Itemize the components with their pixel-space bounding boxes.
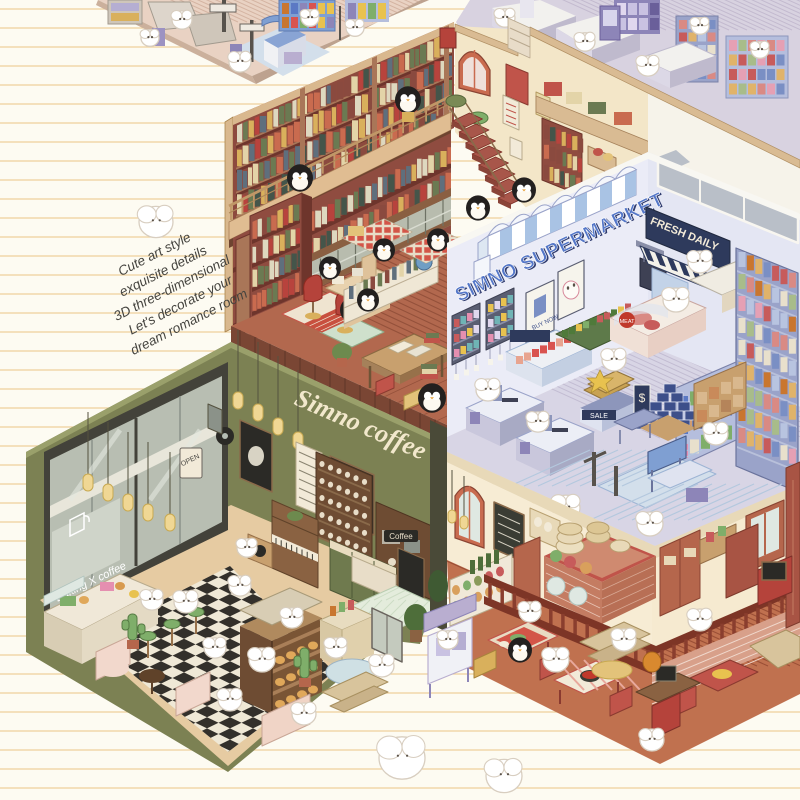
svg-text:Coffee: Coffee (389, 532, 413, 541)
svg-text:MEAT: MEAT (620, 319, 636, 325)
svg-text:SALE: SALE (590, 413, 608, 420)
svg-text:$: $ (639, 391, 646, 405)
